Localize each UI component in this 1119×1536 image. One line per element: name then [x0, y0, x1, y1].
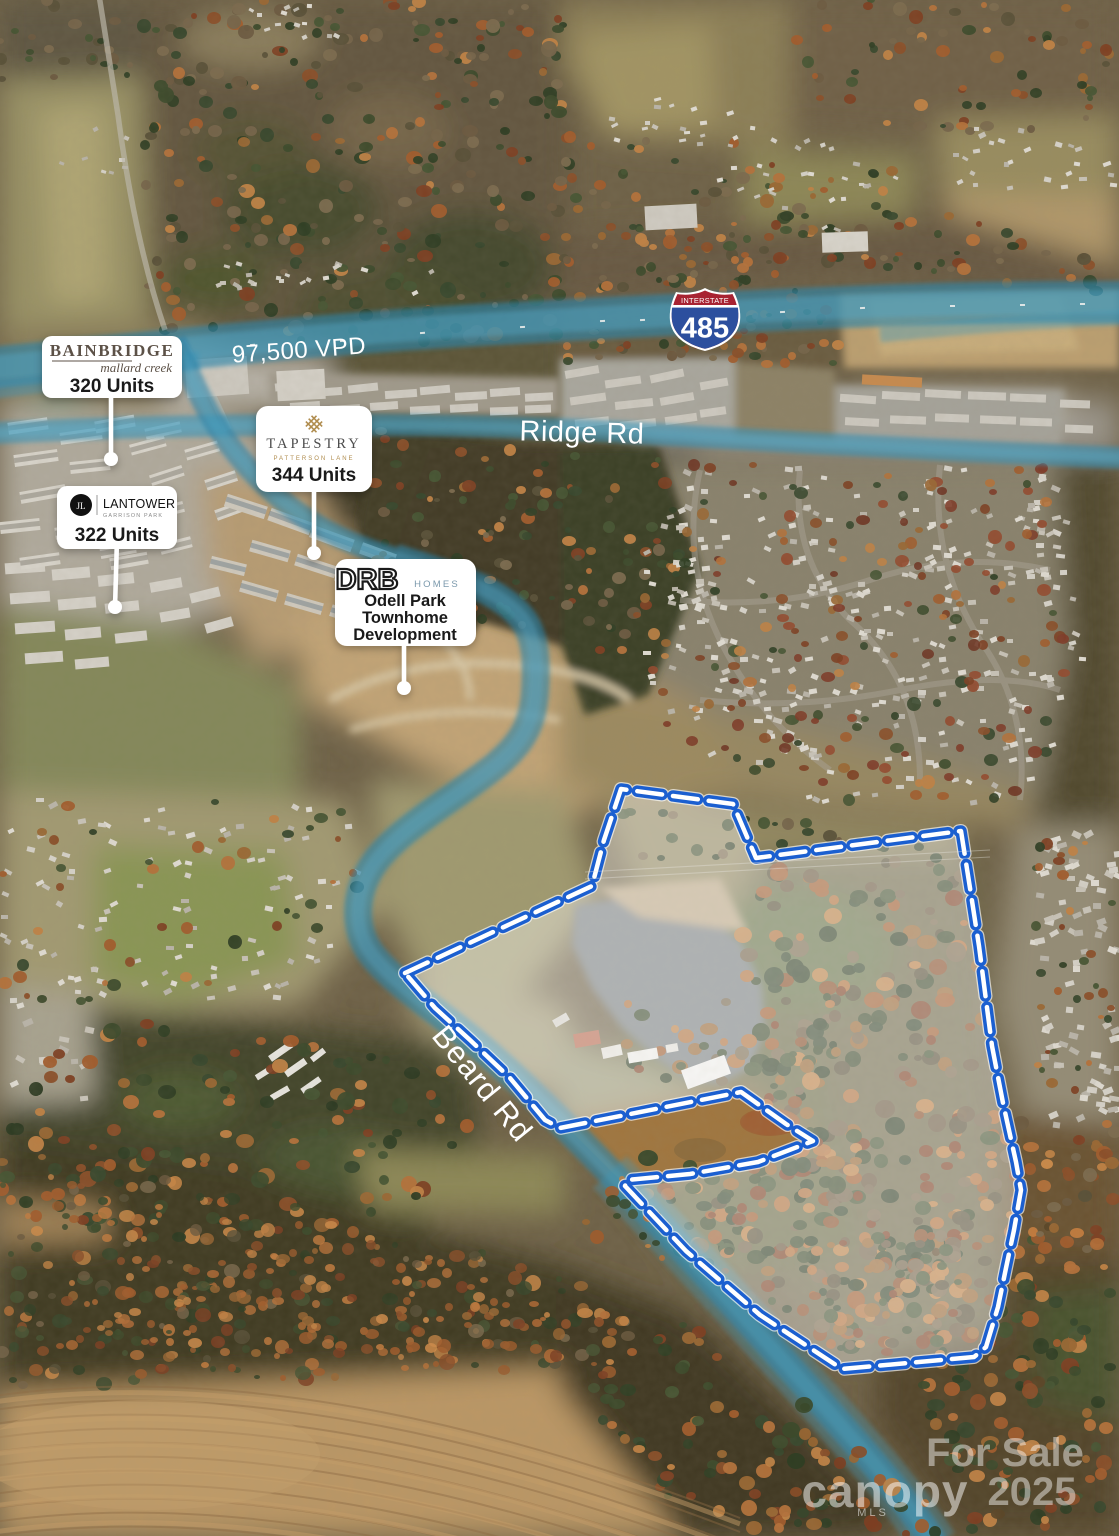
svg-text:BAINBRIDGE: BAINBRIDGE	[50, 341, 175, 360]
svg-text:320 Units: 320 Units	[70, 376, 154, 397]
svg-text:322 Units: 322 Units	[75, 525, 159, 546]
svg-text:344 Units: 344 Units	[272, 465, 356, 486]
svg-text:JL: JL	[77, 501, 86, 511]
svg-text:2025: 2025	[988, 1470, 1077, 1514]
svg-text:485: 485	[681, 313, 729, 345]
svg-text:PATTERSON LANE: PATTERSON LANE	[273, 456, 354, 462]
svg-text:Odell Park: Odell Park	[364, 592, 446, 610]
svg-text:GARRISON PARK: GARRISON PARK	[103, 513, 163, 519]
svg-text:TAPESTRY: TAPESTRY	[266, 436, 361, 452]
svg-text:Development: Development	[353, 626, 457, 644]
svg-text:Ridge Rd: Ridge Rd	[519, 415, 645, 450]
svg-text:mallard creek: mallard creek	[100, 360, 172, 375]
svg-text:LANTOWER: LANTOWER	[103, 497, 175, 511]
svg-text:MLS: MLS	[857, 1507, 889, 1519]
svg-text:Townhome: Townhome	[362, 609, 448, 627]
svg-text:HOMES: HOMES	[414, 579, 460, 590]
svg-text:INTERSTATE: INTERSTATE	[681, 296, 729, 305]
